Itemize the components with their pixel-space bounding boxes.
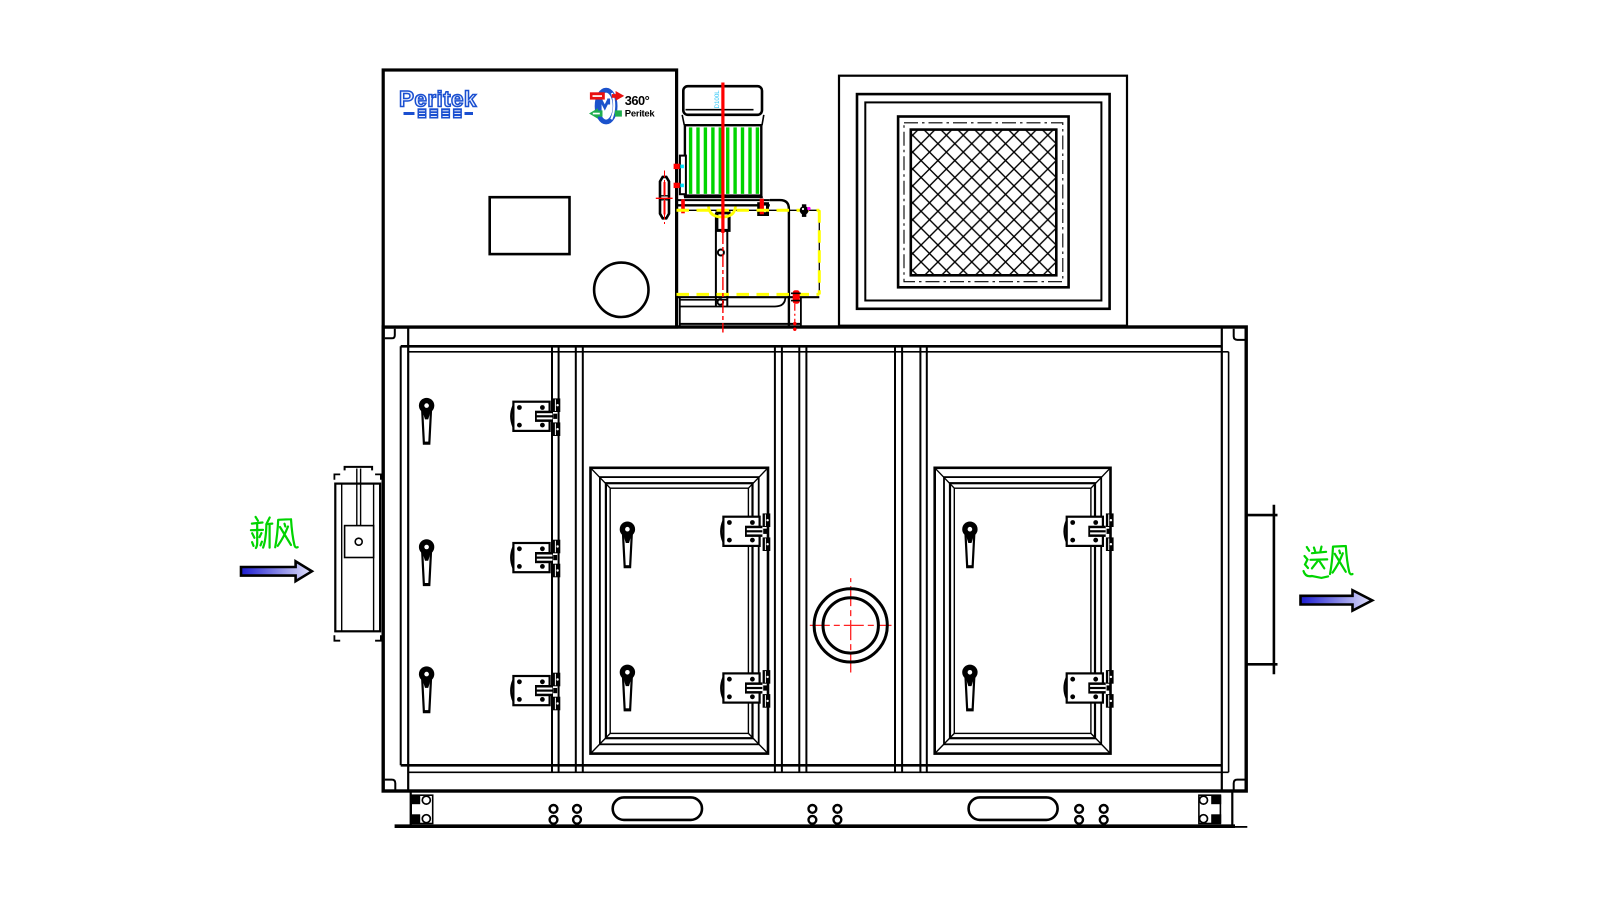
- svg-text:360°: 360°: [625, 93, 650, 108]
- svg-text:D100L: D100L: [714, 90, 721, 109]
- svg-text:Peritek: Peritek: [625, 109, 656, 120]
- svg-text:Peritek: Peritek: [399, 87, 477, 112]
